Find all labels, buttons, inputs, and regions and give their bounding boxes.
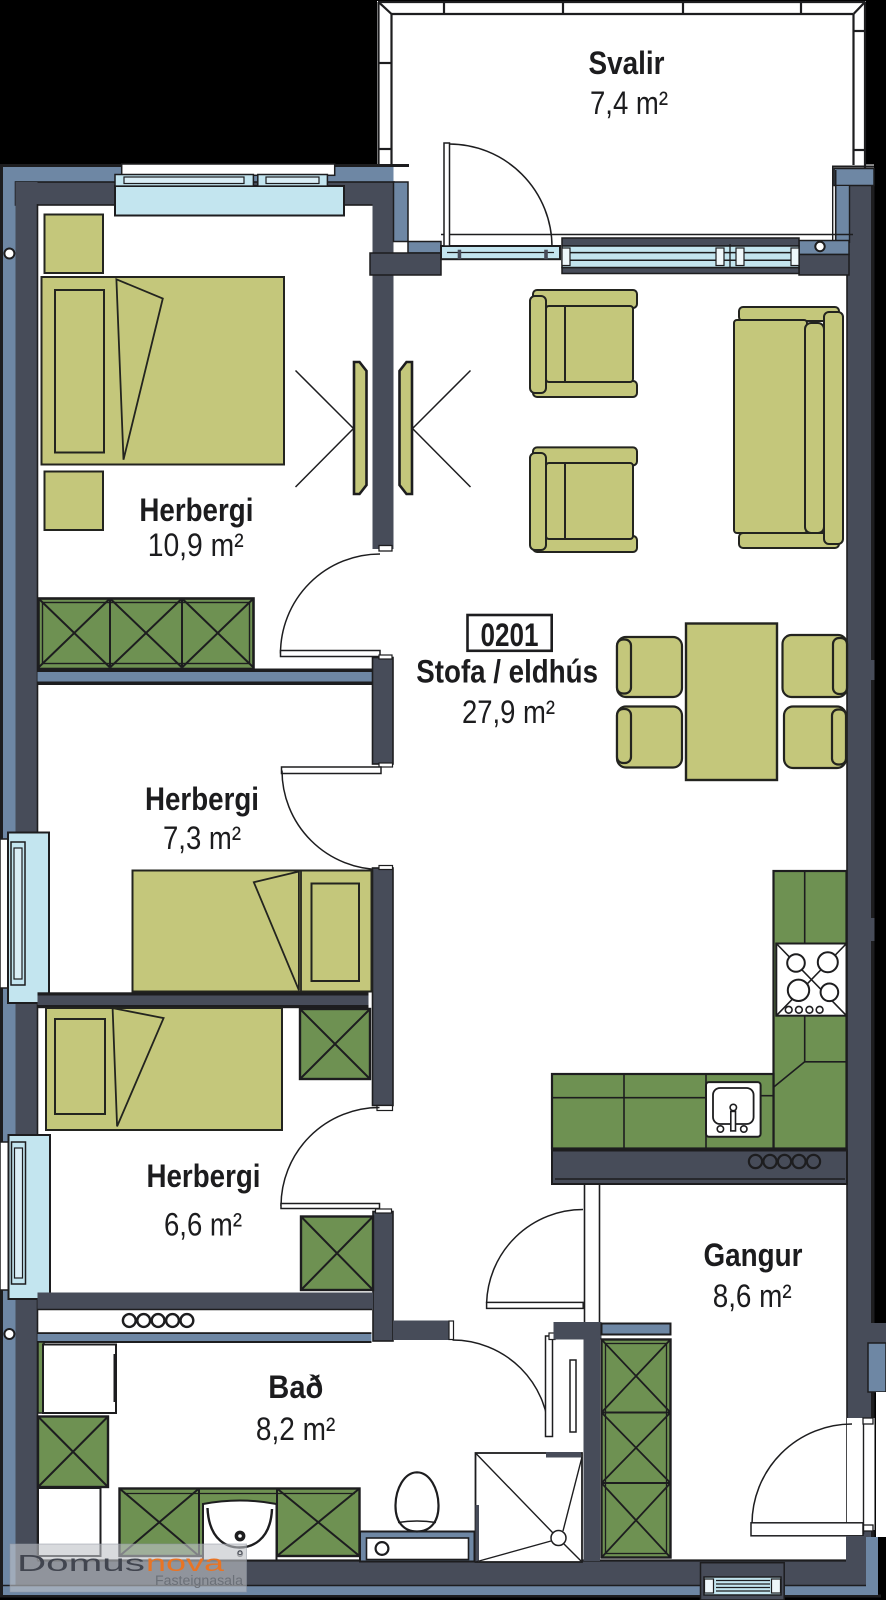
svg-text:27,9 m²: 27,9 m² xyxy=(462,694,555,730)
svg-text:Bað: Bað xyxy=(268,1369,323,1405)
svg-text:7,4 m²: 7,4 m² xyxy=(590,85,668,121)
svg-text:8,2 m²: 8,2 m² xyxy=(256,1411,336,1447)
svg-text:7,3 m²: 7,3 m² xyxy=(163,820,241,856)
svg-text:Svalir: Svalir xyxy=(589,45,665,81)
svg-text:Domus: Domus xyxy=(17,1550,145,1576)
svg-text:Gangur: Gangur xyxy=(704,1237,803,1273)
svg-text:Herbergi: Herbergi xyxy=(145,781,259,817)
svg-text:0201: 0201 xyxy=(481,617,539,653)
svg-text:Herbergi: Herbergi xyxy=(147,1158,261,1194)
svg-text:Herbergi: Herbergi xyxy=(139,492,253,528)
svg-text:Stofa / eldhús: Stofa / eldhús xyxy=(416,653,598,689)
svg-text:6,6 m²: 6,6 m² xyxy=(164,1207,242,1243)
svg-text:Fasteignasala: Fasteignasala xyxy=(155,1573,244,1588)
svg-text:8,6 m²: 8,6 m² xyxy=(713,1278,792,1314)
svg-text:10,9 m²: 10,9 m² xyxy=(148,527,244,563)
